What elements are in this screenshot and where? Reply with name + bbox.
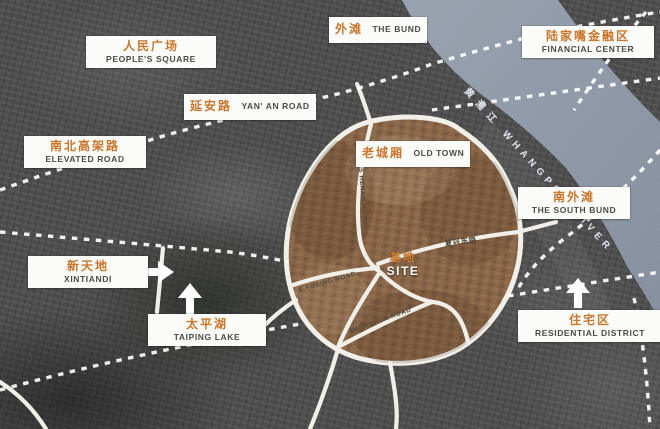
label-the-bund-zh: 外滩 (335, 22, 363, 37)
label-elevated-road-en: ELEVATED ROAD (30, 154, 140, 165)
label-xintiandi-zh: 新天地 (34, 259, 142, 274)
label-south-bund-zh: 南外滩 (524, 190, 624, 205)
label-elevated-road-zh: 南北高架路 (30, 139, 140, 154)
label-yanan-road-en: YAN' AN ROAD (241, 101, 309, 112)
label-xintiandi-en: XINTIANDI (34, 274, 142, 285)
label-peoples-square-zh: 人民广场 (92, 39, 210, 54)
label-residential-district-zh: 住宅区 (524, 313, 656, 328)
label-south-bund-en: THE SOUTH BUND (524, 205, 624, 216)
label-the-bund-en: THE BUND (372, 24, 421, 35)
label-residential-district-en: RESIDENTIAL DISTRICT (524, 328, 656, 339)
label-financial-center: 陆家嘴金融区 FINANCIAL CENTER (522, 26, 654, 58)
label-financial-center-zh: 陆家嘴金融区 (528, 29, 648, 44)
label-peoples-square-en: PEOPLE'S SQUARE (92, 54, 210, 65)
label-old-town-en: OLD TOWN (413, 148, 464, 159)
label-elevated-road: 南北高架路 ELEVATED ROAD (24, 136, 146, 168)
label-the-bund: 外滩 THE BUND (329, 17, 427, 43)
site-marker: 基地 SITE (378, 252, 428, 278)
label-old-town: 老城厢 OLD TOWN (356, 141, 470, 167)
taiping-lake-up-arrow-icon (178, 283, 202, 314)
label-yanan-road: 延安路 YAN' AN ROAD (184, 94, 316, 120)
label-yanan-road-zh: 延安路 (190, 99, 232, 114)
site-marker-en: SITE (378, 265, 428, 279)
label-taiping-lake-zh: 太平湖 (154, 317, 260, 332)
map-canvas: S HENAN ROAD E FUXING ROAD 复兴东路 ZHONGHUA… (0, 0, 660, 429)
label-xintiandi: 新天地 XINTIANDI (28, 256, 148, 288)
label-peoples-square: 人民广场 PEOPLE'S SQUARE (86, 36, 216, 68)
label-taiping-lake: 太平湖 TAIPING LAKE (148, 314, 266, 346)
label-taiping-lake-en: TAIPING LAKE (154, 332, 260, 343)
label-financial-center-en: FINANCIAL CENTER (528, 44, 648, 55)
label-south-bund: 南外滩 THE SOUTH BUND (518, 187, 630, 219)
label-old-town-zh: 老城厢 (362, 146, 404, 161)
label-residential-district: 住宅区 RESIDENTIAL DISTRICT (518, 310, 660, 342)
site-marker-zh: 基地 (378, 252, 428, 265)
